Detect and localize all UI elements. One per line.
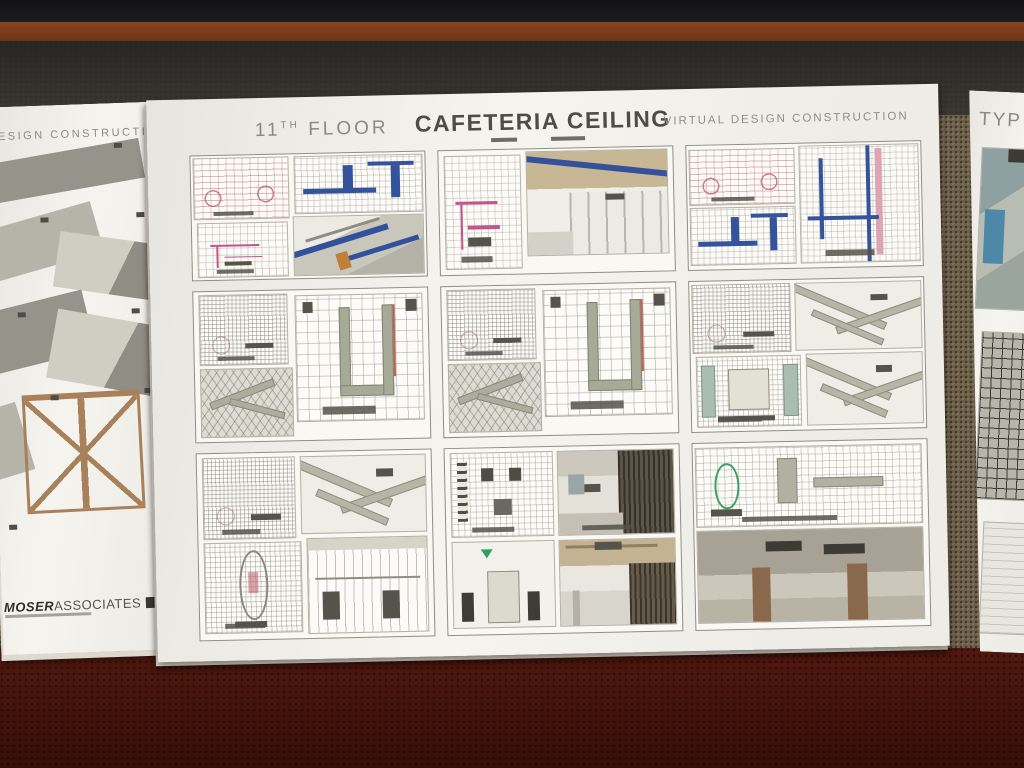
right-sheet-header: TYP [979, 109, 1023, 133]
panel-group-r2c0 [196, 448, 436, 641]
drawing-render-ceiling [559, 537, 678, 627]
drawing-plan-dense [201, 456, 296, 540]
construction-photo-panel [975, 147, 1024, 313]
wire-mesh-panel [974, 331, 1024, 503]
drawing-scaffold [22, 389, 146, 514]
drawing-plan-dense [446, 288, 536, 360]
caption-bar [214, 212, 254, 217]
drawing-elevation [306, 535, 430, 634]
drawing-chip [9, 525, 17, 530]
drawing-plan-furniture [449, 451, 554, 539]
panel-group-r1c0 [192, 286, 431, 443]
cafeteria-ceiling-sheet: 11TH FLOOR CAFETERIA CEILING VIRTUAL DES… [146, 84, 950, 662]
panel-group-r1c2 [688, 276, 927, 433]
drawing-plan-red [689, 148, 795, 206]
drawing-axon-duct [794, 280, 922, 350]
caption-bar [216, 269, 254, 274]
photo-caption-bar [1009, 149, 1024, 164]
drawing-chip [114, 143, 122, 148]
drawing-axon-grid [447, 362, 542, 433]
caption-bar [571, 401, 624, 410]
caption-bar [461, 256, 493, 263]
caption-bar [711, 196, 754, 201]
light-drawing-panel [979, 521, 1024, 636]
dark-shelf-edge [0, 0, 1024, 22]
drawing-plan-bluepink [799, 144, 921, 264]
drawing-slab-dark [0, 138, 145, 203]
drawing-chip [40, 217, 48, 222]
drawing-chip [132, 308, 140, 313]
panel-group-r2c2 [691, 438, 931, 631]
drawing-iso-blue [292, 214, 424, 276]
drawing-grid-duct [294, 292, 425, 422]
drawing-chip [18, 312, 26, 317]
photo-blue-detail [983, 209, 1005, 264]
drawing-plan-red [193, 157, 290, 221]
logo-text-regular: ASSOCIATES [54, 595, 142, 613]
caption-bar [225, 623, 266, 629]
maroon-carpet-floor [0, 648, 1024, 768]
caption-bar [222, 529, 261, 535]
drawing-grid-duct [542, 287, 673, 417]
panel-group-r2c1 [444, 443, 684, 636]
caption-bar [218, 356, 255, 361]
drawing-axon-duct [805, 351, 923, 425]
drawing-plan-magenta [443, 154, 523, 270]
panel-group-r0c1 [437, 145, 676, 276]
panel-group-r1c1 [440, 281, 679, 438]
drawing-plan-blue [293, 154, 423, 214]
caption-bar [825, 249, 874, 257]
drawing-axon-grid [200, 367, 295, 438]
drawing-plan-magenta [196, 221, 288, 277]
drawing-plan-dense [198, 293, 288, 365]
drawing-axon-duct [300, 453, 428, 534]
drawing-chip [51, 395, 59, 400]
drawing-plan-detail [695, 355, 802, 428]
panel-grid [189, 140, 931, 641]
caption-bar [718, 418, 761, 423]
drawing-perspective [525, 149, 670, 256]
caption-bar [466, 351, 503, 356]
drawing-render-dark [557, 448, 676, 536]
drawing-chip [136, 212, 144, 217]
wood-trim-strip [0, 22, 1024, 41]
caption-bar [472, 527, 514, 533]
caption-bar [742, 515, 837, 522]
drawing-elev-green [451, 540, 556, 630]
panel-group-r0c0 [189, 151, 428, 282]
caption-bar [323, 406, 376, 415]
caption-bar [583, 524, 631, 530]
drawing-plan-oval [203, 541, 303, 634]
drawing-plan-circle [695, 443, 924, 528]
photo-scene: DESIGN CONSTRUCTION MOSERASSOCIATES 11TH… [0, 0, 1024, 768]
caption-bar [713, 344, 753, 349]
drawing-plan-blue [690, 206, 796, 266]
drawing-plan-dense [692, 283, 792, 354]
drawing-plenum [697, 527, 926, 625]
panel-group-r0c2 [685, 140, 924, 271]
